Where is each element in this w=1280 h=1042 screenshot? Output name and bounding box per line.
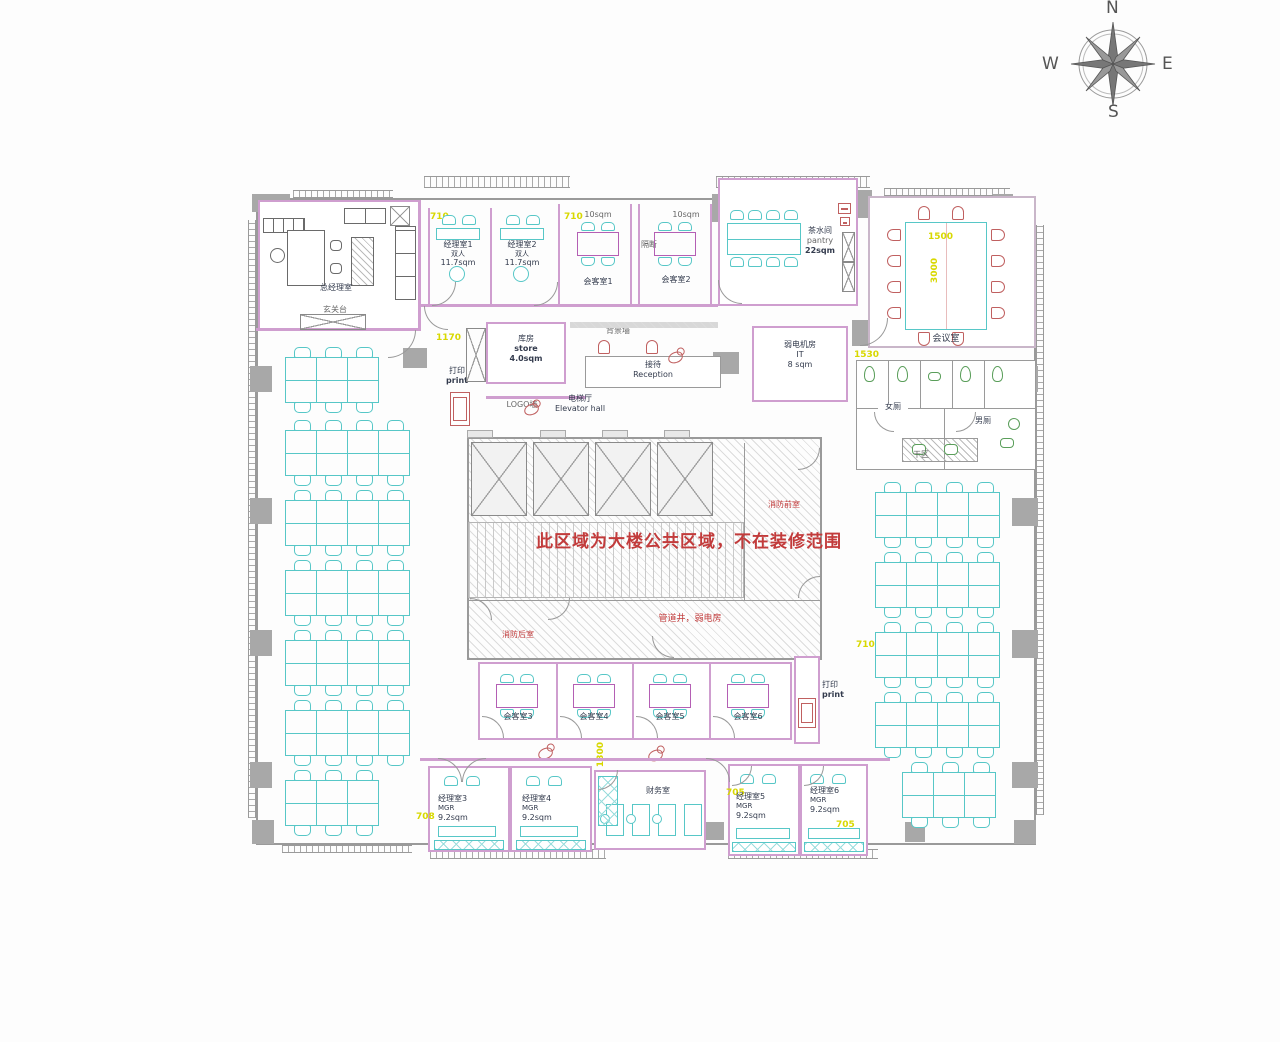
pantry-chair — [784, 257, 798, 267]
door-arc — [534, 282, 558, 306]
meet1-table — [577, 232, 619, 256]
wall — [920, 360, 921, 408]
pantry-chair — [730, 210, 744, 220]
meet2-area-label: 10sqm — [666, 210, 706, 220]
wall — [710, 204, 712, 306]
sink-icon — [944, 444, 958, 455]
mgr5-label: 经理室5 MGR 9.2sqm — [732, 792, 788, 821]
printer-icon — [450, 392, 470, 426]
column — [250, 630, 272, 656]
door-arc — [438, 758, 462, 782]
mgr2-chair — [506, 215, 520, 225]
dim-label: 1500 — [928, 232, 953, 242]
printer-icon — [798, 698, 816, 728]
desk-cluster — [285, 357, 378, 403]
toilet-icon — [864, 366, 875, 382]
wall — [420, 304, 718, 307]
conference-chair — [991, 255, 1005, 267]
desk-cluster — [902, 772, 995, 818]
meet4-table — [573, 684, 615, 708]
desk-cluster — [875, 562, 999, 608]
wc-dry-label: 干区 — [906, 450, 936, 460]
mgr6-chair — [832, 774, 846, 784]
mgr1-chair — [442, 215, 456, 225]
conference-chair — [887, 255, 901, 267]
finance-label: 财务室 — [632, 786, 684, 796]
elevator-shaft — [657, 442, 713, 516]
desk-cluster — [285, 430, 409, 476]
pantry-chair — [748, 210, 762, 220]
door-arc — [432, 282, 456, 306]
mgr2-desk — [500, 228, 544, 240]
window-band — [293, 190, 393, 198]
conference-chair — [887, 229, 901, 241]
store-shelf — [466, 328, 486, 382]
mgr1-area-label: 11.7sqm — [430, 258, 486, 268]
finance-chair — [626, 814, 636, 824]
desk-cluster — [285, 640, 409, 686]
elevator-shaft — [471, 442, 527, 516]
reception-chair — [646, 340, 658, 354]
wall — [490, 208, 492, 306]
mgr1-desk — [436, 228, 480, 240]
mgr3-label: 经理室3 MGR 9.2sqm — [432, 794, 488, 823]
mgr5-desk — [736, 828, 790, 839]
door-arc — [706, 758, 730, 782]
mgr1-table — [449, 266, 465, 282]
conference-chair — [991, 229, 1005, 241]
wall — [744, 443, 745, 600]
compass-west-label: W — [1042, 54, 1059, 74]
desk-cluster — [875, 702, 999, 748]
wall — [984, 360, 985, 408]
elevator-hall-label: 电梯厅 Elevator hall — [540, 394, 620, 414]
pantry-table — [727, 223, 801, 255]
column — [1014, 820, 1036, 844]
public-area-notice: 此区域为大楼公共区域，不在装修范围 — [536, 527, 842, 552]
shaft-door — [467, 430, 493, 438]
wall — [556, 662, 558, 740]
meet2-table — [654, 232, 696, 256]
pantry-appliance — [838, 203, 851, 214]
mgr5-shelf — [732, 842, 796, 852]
wall — [418, 200, 421, 331]
meet6-label: 会客室6 — [722, 712, 774, 722]
desk-cluster — [875, 492, 999, 538]
desk-cluster — [875, 632, 999, 678]
sink-icon — [1000, 438, 1014, 448]
desk-cluster — [285, 500, 409, 546]
finance-chair — [652, 814, 662, 824]
mgr1-label: 经理室1 双人 — [430, 240, 486, 259]
shaft-door — [602, 430, 628, 438]
gm-guest-chair — [330, 240, 342, 251]
compass-south-label: S — [1108, 102, 1119, 122]
window-band — [884, 188, 1010, 196]
mgr2-table — [513, 266, 529, 282]
wall — [467, 600, 822, 601]
wall — [558, 204, 560, 306]
wall — [420, 758, 890, 761]
store-label: 库房 store 4.0sqm — [498, 334, 554, 364]
pantry-chair — [784, 210, 798, 220]
mgr5-chair — [762, 774, 776, 784]
wall — [632, 662, 634, 740]
pantry-chair — [730, 257, 744, 267]
gm-guest-chair — [330, 263, 342, 274]
elevator-shaft — [533, 442, 589, 516]
shaft-door — [664, 430, 690, 438]
mgr1-chair — [462, 215, 476, 225]
column — [250, 762, 272, 788]
mgr6-shelf — [804, 842, 864, 852]
column — [1012, 498, 1038, 526]
window-band — [424, 176, 570, 188]
dim-label: 3000 — [930, 258, 940, 283]
wall — [638, 204, 640, 306]
meet5-label: 会客室5 — [644, 712, 696, 722]
mgr4-chair — [526, 776, 540, 786]
elevator-shaft — [595, 442, 651, 516]
meet3-table — [496, 684, 538, 708]
desk-cluster — [285, 710, 409, 756]
mgr2-label: 经理室2 双人 — [494, 240, 550, 259]
wall — [952, 360, 953, 408]
sink-icon — [1008, 418, 1020, 430]
conference-chair — [887, 281, 901, 293]
conference-chair — [952, 206, 964, 220]
pantry-chair — [748, 257, 762, 267]
it-label: 弱电机房 IT 8 sqm — [762, 340, 838, 370]
conference-chair — [991, 281, 1005, 293]
meet6-table — [727, 684, 769, 708]
dim-label: 710 — [856, 640, 875, 650]
pantry-cabinet — [842, 262, 855, 292]
compass-north-label: N — [1106, 0, 1119, 18]
reception-label: 接待 Reception — [610, 360, 696, 380]
finance-desk — [684, 804, 702, 836]
meet2-label: 会客室2 — [650, 275, 702, 285]
bg-wall — [570, 322, 718, 328]
dim-label: 708 — [416, 812, 435, 822]
mgr4-label: 经理室4 MGR 9.2sqm — [516, 794, 572, 823]
gm-chair — [270, 248, 285, 263]
dim-label: 1530 — [854, 350, 879, 360]
meet1-area-label: 10sqm — [578, 210, 618, 220]
pantry-label: 茶水间 pantry 22sqm — [792, 226, 848, 256]
wc-women-label: 女厕 — [878, 402, 908, 412]
mgr4-desk — [520, 826, 578, 837]
desk-cluster — [285, 570, 409, 616]
print-bottom-label: 打印 print — [822, 680, 856, 700]
door-arc — [424, 306, 448, 330]
shaft-door — [540, 430, 566, 438]
mgr4-chair — [548, 776, 562, 786]
meet3-label: 会客室3 — [492, 712, 544, 722]
gm-sofa — [344, 208, 386, 224]
toilet-icon — [992, 366, 1003, 382]
compass-rose: N W E S — [1048, 2, 1178, 122]
column — [1012, 762, 1038, 788]
toilet-icon — [960, 366, 971, 382]
column — [1012, 630, 1038, 658]
mgr6-desk — [808, 828, 860, 839]
desk-cluster — [285, 780, 378, 826]
fire-front-label: 消防前室 — [752, 500, 816, 510]
dim-label: 1170 — [436, 333, 461, 343]
gm-desk — [287, 230, 325, 286]
conference-chair — [918, 206, 930, 220]
pantry-chair — [766, 257, 780, 267]
mgr4-shelf — [516, 840, 586, 850]
mgr2-chair — [526, 215, 540, 225]
wall — [630, 204, 632, 306]
pantry-chair — [766, 210, 780, 220]
gm-office-label: 总经理室 — [306, 283, 366, 293]
pantry-appliance — [840, 217, 850, 226]
compass-east-label: E — [1162, 54, 1173, 74]
toilet-icon — [897, 366, 908, 382]
reception-chair — [598, 340, 610, 354]
wall — [888, 360, 889, 408]
column — [403, 348, 427, 368]
conference-chair — [887, 307, 901, 319]
gm-coffee-table — [351, 237, 374, 286]
meet4-label: 会客室4 — [568, 712, 620, 722]
pipe-shaft-label: 管道井，弱电房 — [620, 614, 760, 625]
urinal-icon — [928, 372, 941, 381]
conference-chair — [991, 307, 1005, 319]
fire-rear-label: 消防后室 — [486, 630, 550, 640]
gm-side-table — [390, 206, 410, 226]
meet1-label: 会客室1 — [572, 277, 624, 287]
mgr3-shelf — [434, 840, 504, 850]
wall — [709, 662, 711, 740]
door-arc — [462, 758, 486, 782]
mgr3-desk — [438, 826, 496, 837]
gm-sofa — [395, 226, 416, 300]
entry-console — [300, 314, 366, 330]
column — [250, 366, 272, 392]
dim-label: 1300 — [596, 742, 606, 767]
meet5-table — [649, 684, 691, 708]
column — [250, 498, 272, 524]
column — [252, 820, 274, 844]
conference-label: 会议室 — [912, 334, 980, 345]
mgr6-label: 经理室6 MGR 9.2sqm — [806, 786, 862, 815]
window-band — [282, 845, 412, 853]
mgr2-area-label: 11.7sqm — [494, 258, 550, 268]
